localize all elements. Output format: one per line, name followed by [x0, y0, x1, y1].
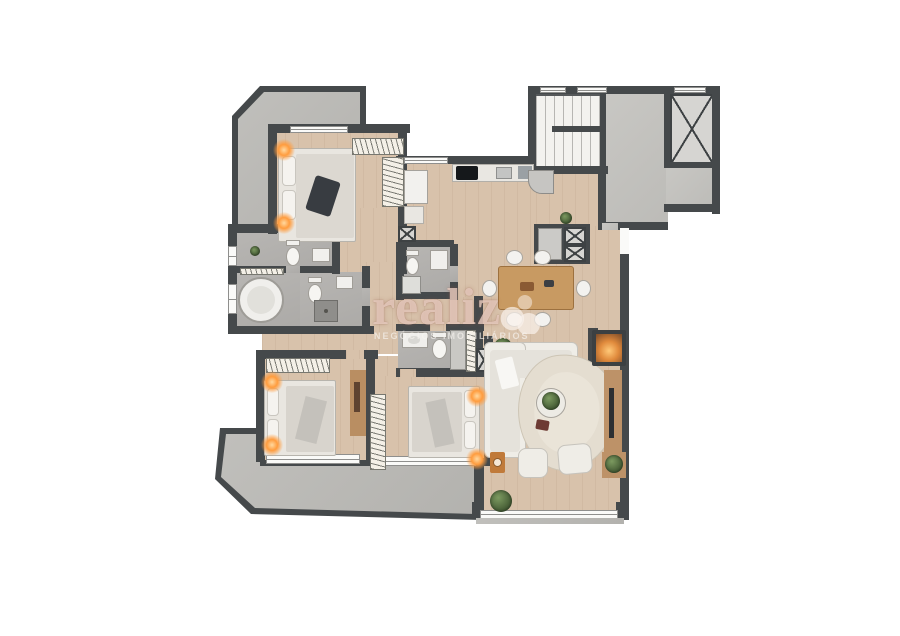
closet — [382, 157, 404, 207]
door-gap — [400, 369, 416, 377]
wall-segment — [712, 86, 720, 214]
cooktop — [456, 166, 478, 180]
refrigerator — [404, 170, 428, 204]
toilet — [406, 257, 419, 275]
dining-chair — [576, 280, 591, 297]
corridor-floor-3 — [398, 297, 484, 327]
counter — [404, 206, 424, 224]
armchair — [557, 443, 593, 476]
stair-landing-rail — [552, 126, 602, 132]
window — [540, 87, 566, 93]
plant — [250, 246, 260, 256]
window — [674, 87, 706, 93]
closet — [352, 138, 404, 155]
pillow — [464, 421, 476, 449]
dining-chair — [506, 250, 523, 265]
toilet-tank — [286, 240, 300, 246]
entry-door — [620, 228, 629, 254]
wall-segment — [664, 204, 720, 212]
ceiling-light — [466, 385, 488, 407]
door-gap — [450, 266, 458, 282]
plant — [542, 392, 560, 410]
shower-screen — [466, 330, 476, 372]
duct-shaft — [398, 226, 416, 242]
ceiling-light — [273, 212, 295, 234]
table-decor — [544, 280, 554, 287]
ceiling-light — [261, 371, 283, 393]
stairwell — [534, 94, 604, 170]
door-gap — [430, 324, 446, 331]
toilet-tank — [308, 277, 322, 283]
wardrobe — [370, 394, 386, 470]
door-gap — [602, 223, 618, 230]
plant — [490, 490, 512, 512]
floor-plan-canvas: realiz NEGÓCIOS IMOBILIÁRIOS — [0, 0, 900, 636]
bathroom-sink — [312, 248, 330, 262]
armchair — [518, 448, 548, 478]
balcony-door-window — [290, 126, 348, 133]
shower — [450, 330, 466, 370]
window — [577, 87, 607, 93]
toilet-tank — [406, 250, 419, 256]
mat-ring — [493, 458, 502, 467]
toilet — [432, 339, 447, 359]
table-decor — [520, 282, 534, 291]
shower — [402, 276, 421, 294]
ceiling-light — [261, 434, 283, 456]
door-gap — [286, 266, 300, 273]
drain — [324, 309, 328, 313]
elevator-shaft — [670, 94, 714, 164]
decor-box — [535, 419, 550, 431]
common-hall-floor — [602, 92, 668, 224]
door-gap — [346, 350, 364, 359]
window — [228, 246, 237, 266]
bathroom-sink — [336, 276, 353, 289]
kitchen-sink — [496, 167, 512, 179]
door-gap — [362, 288, 370, 306]
tv — [609, 388, 614, 438]
sink-basin — [408, 336, 420, 344]
counter-plant — [560, 212, 572, 224]
desk-items — [354, 382, 360, 412]
duct-shaft — [564, 227, 586, 245]
window-sill — [476, 518, 624, 524]
counter-sink-nook — [528, 170, 554, 194]
bathtub-inner — [247, 286, 275, 314]
dining-chair — [534, 250, 551, 265]
shower-ledge — [240, 268, 284, 275]
fireplace-glow — [596, 334, 622, 362]
elevator-lobby-floor — [666, 164, 716, 208]
window — [228, 284, 237, 314]
dining-table — [498, 266, 574, 310]
ceiling-light — [466, 448, 488, 470]
toilet — [286, 247, 300, 266]
wall-segment — [664, 92, 670, 166]
bathroom-cabinet — [430, 250, 448, 270]
ceiling-light — [273, 139, 295, 161]
window — [404, 157, 448, 164]
dining-chair — [534, 312, 551, 327]
wall-segment — [228, 224, 237, 334]
plant — [605, 455, 623, 473]
wall-segment — [228, 326, 374, 334]
wall-segment — [598, 166, 606, 228]
toilet-tank — [432, 332, 447, 338]
wall-segment — [664, 162, 720, 168]
duct-shaft — [564, 245, 586, 262]
dining-chair — [506, 312, 523, 327]
dining-chair — [482, 280, 497, 297]
wall-segment — [600, 92, 606, 170]
